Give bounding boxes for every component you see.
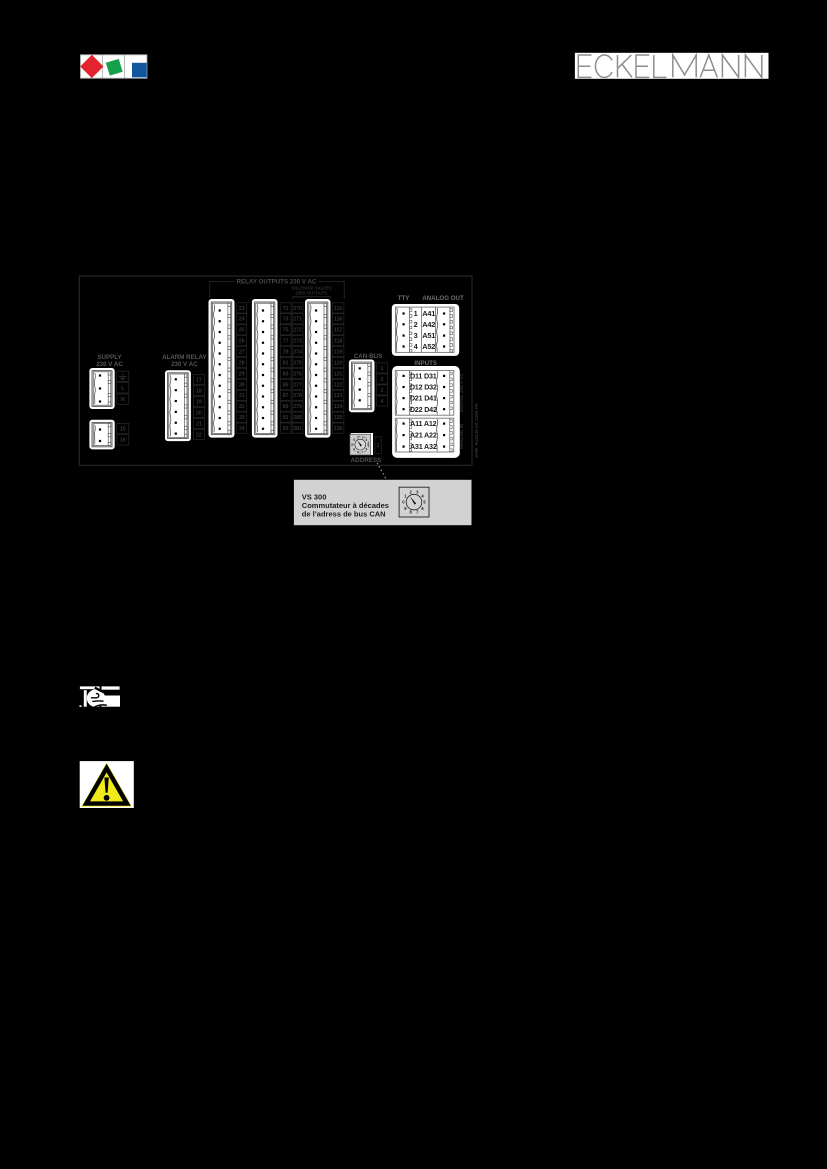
svg-text:3: 3 xyxy=(414,331,418,340)
svg-text:75: 75 xyxy=(283,328,289,334)
svg-text:271: 271 xyxy=(293,317,302,323)
svg-text:87: 87 xyxy=(283,393,289,399)
svg-text:89: 89 xyxy=(283,404,289,410)
svg-text:17: 17 xyxy=(196,377,202,383)
svg-text:119: 119 xyxy=(334,350,342,356)
svg-text:71: 71 xyxy=(283,306,289,312)
svg-text:272: 272 xyxy=(293,328,302,334)
svg-text:RELAY OUTPUTS 230 V AC: RELAY OUTPUTS 230 V AC xyxy=(237,278,317,285)
svg-text:ANALOG OUT: ANALOG OUT xyxy=(422,295,464,302)
svg-text:A11 A12: A11 A12 xyxy=(410,419,437,428)
svg-text:34: 34 xyxy=(239,426,245,432)
svg-text:118: 118 xyxy=(334,339,342,345)
svg-text:1: 1 xyxy=(381,366,384,372)
svg-text:A52: A52 xyxy=(422,342,435,351)
svg-text:124: 124 xyxy=(334,404,343,410)
svg-text:1: 1 xyxy=(377,443,380,449)
svg-text:23: 23 xyxy=(239,306,245,312)
svg-text:19: 19 xyxy=(196,399,202,405)
svg-text:115: 115 xyxy=(334,306,342,312)
svg-text:20: 20 xyxy=(196,410,202,416)
svg-text:91: 91 xyxy=(283,415,289,421)
svg-text:117: 117 xyxy=(334,328,342,334)
svg-text:26: 26 xyxy=(239,339,245,345)
svg-text:ANALOG IN: ANALOG IN xyxy=(459,423,464,449)
svg-text:120: 120 xyxy=(334,360,343,366)
svg-text:1: 1 xyxy=(414,309,418,318)
svg-text:30: 30 xyxy=(239,382,245,388)
svg-text:32: 32 xyxy=(239,404,245,410)
svg-text:125: 125 xyxy=(334,415,343,421)
svg-text:21: 21 xyxy=(196,421,202,427)
svg-text:A31 A32: A31 A32 xyxy=(410,442,437,451)
svg-text:ZNR. 912345 60 1290 P0: ZNR. 912345 60 1290 P0 xyxy=(474,403,480,458)
svg-text:274: 274 xyxy=(293,350,302,356)
svg-text:A51: A51 xyxy=(422,331,435,340)
svg-text:270: 270 xyxy=(293,306,302,312)
svg-text:85: 85 xyxy=(283,382,289,388)
svg-text:126: 126 xyxy=(334,426,343,432)
svg-text:121: 121 xyxy=(334,371,343,377)
svg-text:24: 24 xyxy=(239,317,245,323)
svg-text:CAN-BUS: CAN-BUS xyxy=(354,353,383,360)
svg-text:93: 93 xyxy=(283,426,289,432)
svg-text:D22 D42: D22 D42 xyxy=(410,405,437,414)
svg-text:79: 79 xyxy=(283,350,289,356)
svg-text:81: 81 xyxy=(283,360,289,366)
svg-text:276: 276 xyxy=(293,371,302,377)
svg-text:230 V AC: 230 V AC xyxy=(171,361,198,368)
svg-text:D11 D31: D11 D31 xyxy=(410,372,437,381)
svg-text:279: 279 xyxy=(293,404,302,410)
svg-text:ADDRESS: ADDRESS xyxy=(351,457,382,464)
svg-text:27: 27 xyxy=(239,350,245,356)
svg-text:25: 25 xyxy=(239,328,245,334)
svg-text:TTY: TTY xyxy=(398,295,411,302)
svg-text:281: 281 xyxy=(293,426,302,432)
svg-text:4: 4 xyxy=(381,399,384,405)
svg-text:28: 28 xyxy=(239,360,245,366)
svg-text:83: 83 xyxy=(283,371,289,377)
svg-text:273: 273 xyxy=(293,339,302,345)
svg-text:116: 116 xyxy=(334,317,342,323)
svg-text:280: 280 xyxy=(293,415,302,421)
svg-text:de l’adress de bus CAN: de l’adress de bus CAN xyxy=(302,509,386,518)
svg-text:A41: A41 xyxy=(422,309,435,318)
svg-text:N: N xyxy=(121,397,125,403)
svg-text:230 V AC: 230 V AC xyxy=(96,361,123,368)
svg-text:277: 277 xyxy=(293,382,302,388)
svg-text:73: 73 xyxy=(283,317,289,323)
svg-text:A42: A42 xyxy=(422,320,435,329)
svg-text:77: 77 xyxy=(283,339,289,345)
svg-text:A21 A22: A21 A22 xyxy=(410,431,437,440)
svg-text:INPUTS: INPUTS xyxy=(414,360,437,367)
svg-text:123: 123 xyxy=(334,393,343,399)
svg-text:22: 22 xyxy=(196,432,202,438)
svg-text:33: 33 xyxy=(239,415,245,421)
svg-text:122: 122 xyxy=(334,382,343,388)
svg-text:3: 3 xyxy=(381,388,384,394)
svg-text:31: 31 xyxy=(239,393,245,399)
svg-text:29: 29 xyxy=(239,371,245,377)
svg-text:18: 18 xyxy=(196,388,202,394)
svg-text:230V OUTPUTS: 230V OUTPUTS xyxy=(296,290,328,295)
svg-text:275: 275 xyxy=(293,360,302,366)
svg-text:D12 D32: D12 D32 xyxy=(410,383,437,392)
svg-text:D21 D41: D21 D41 xyxy=(410,394,437,403)
svg-text:278: 278 xyxy=(293,393,302,399)
svg-text:DIGITAL 230 V AC: DIGITAL 230 V AC xyxy=(459,372,464,412)
svg-text:2: 2 xyxy=(381,377,384,383)
svg-text:2: 2 xyxy=(414,320,418,329)
svg-text:16: 16 xyxy=(120,438,126,444)
svg-text:15: 15 xyxy=(120,427,126,433)
